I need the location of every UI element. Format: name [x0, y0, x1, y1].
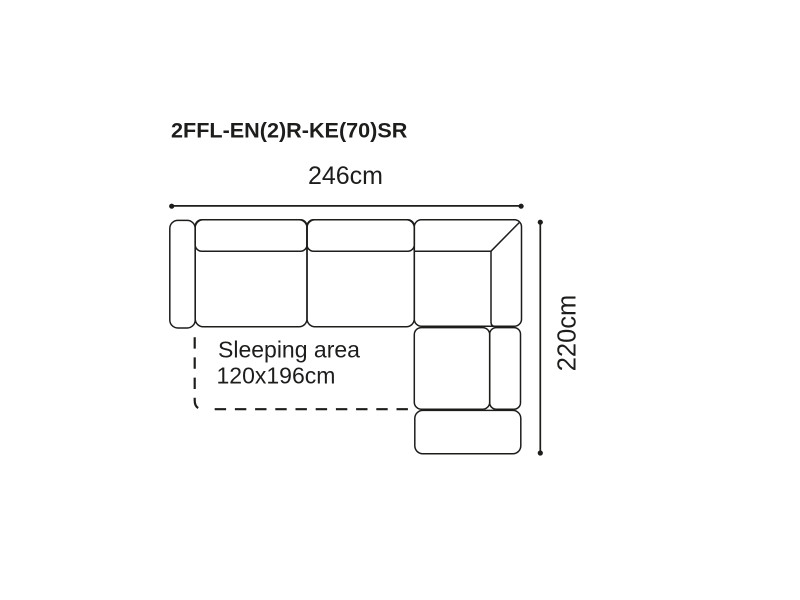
svg-text:2FFL-EN(2)R-KE(70)SR: 2FFL-EN(2)R-KE(70)SR	[171, 117, 408, 142]
svg-text:246cm: 246cm	[308, 162, 383, 190]
svg-text:220cm: 220cm	[554, 295, 582, 372]
svg-text:Sleeping area: Sleeping area	[218, 337, 360, 363]
svg-text:120x196cm: 120x196cm	[217, 362, 336, 388]
